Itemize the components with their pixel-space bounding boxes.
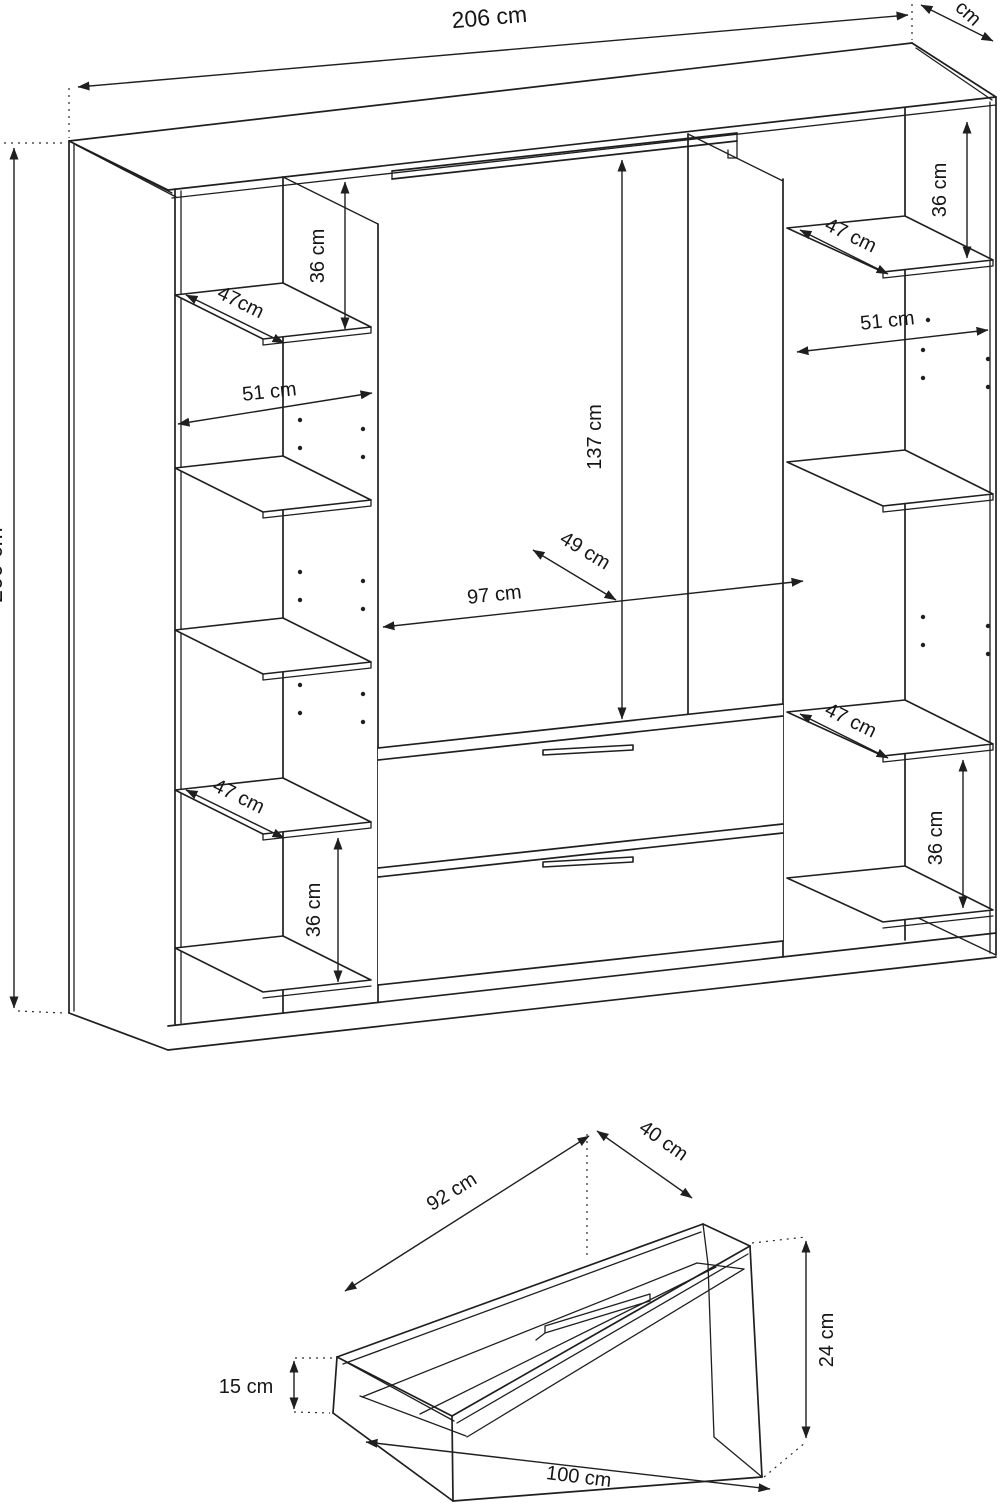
drawer-dimensions: 92 cm 40 cm 24 cm 15 cm 100 cm: [219, 1116, 838, 1492]
left-top-gap-label: 36 cm: [307, 229, 329, 283]
drawer-outline: [333, 1224, 762, 1501]
right-top-gap-label: 36 cm: [929, 163, 951, 217]
wardrobe-drawers: [378, 704, 783, 985]
wardrobe-width-label: 206 cm: [451, 1, 528, 33]
drawer-front-height-label: 24 cm: [816, 1313, 838, 1367]
right-bottom-gap-label: 36 cm: [925, 811, 947, 865]
left-width-label: 51 cm: [241, 378, 297, 406]
furniture-diagram: 206 cm 200 cm cm 36 cm 47cm 51 cm 47 cm …: [0, 0, 1000, 1508]
drawer-back-height-label: 15 cm: [219, 1376, 273, 1398]
middle-section-dimensions: 137 cm 49 cm 97 cm: [383, 160, 803, 719]
left-bottom-gap-label: 36 cm: [303, 883, 325, 937]
wardrobe-depth-label: cm: [951, 0, 986, 31]
technical-drawing-page: 206 cm 200 cm cm 36 cm 47cm 51 cm 47 cm …: [0, 0, 1000, 1508]
drawer-inner-width-label: 92 cm: [423, 1168, 481, 1216]
middle-width-label: 97 cm: [466, 581, 522, 609]
shelf-pin-holes: [298, 318, 990, 724]
drawer-outer-width-label: 100 cm: [545, 1462, 613, 1492]
drawer-diagram: 92 cm 40 cm 24 cm 15 cm 100 cm: [219, 1116, 838, 1501]
drawer-inner-handle: [536, 1294, 650, 1340]
drawer-inner-depth-label: 40 cm: [635, 1116, 692, 1165]
hanging-height-label: 137 cm: [584, 404, 606, 470]
right-width-label: 51 cm: [859, 307, 915, 335]
hanging-depth-label: 49 cm: [556, 527, 614, 574]
wardrobe-diagram: 206 cm 200 cm cm 36 cm 47cm 51 cm 47 cm …: [0, 0, 996, 1050]
wardrobe-height-label: 200 cm: [0, 527, 7, 602]
